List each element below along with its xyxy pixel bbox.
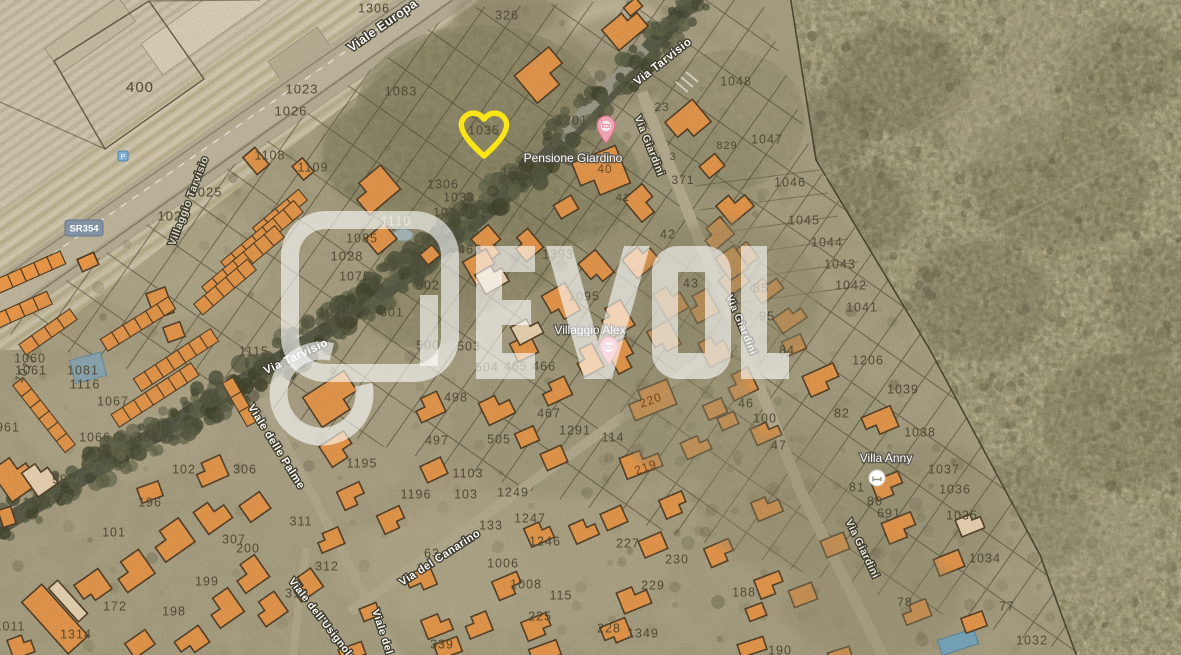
svg-text:1249: 1249 xyxy=(497,485,529,499)
svg-text:1008: 1008 xyxy=(510,577,542,591)
svg-text:1201: 1201 xyxy=(556,113,588,127)
svg-text:1036: 1036 xyxy=(939,482,971,496)
svg-text:196: 196 xyxy=(138,495,162,509)
svg-text:115: 115 xyxy=(550,588,573,602)
svg-text:41: 41 xyxy=(616,192,630,204)
svg-text:1020: 1020 xyxy=(136,430,168,444)
svg-text:229: 229 xyxy=(641,578,665,592)
svg-text:1034: 1034 xyxy=(433,205,465,219)
svg-text:1196: 1196 xyxy=(401,487,432,501)
svg-text:3: 3 xyxy=(669,151,676,163)
svg-text:1195: 1195 xyxy=(347,456,378,470)
svg-text:1046: 1046 xyxy=(774,175,806,189)
svg-text:1103: 1103 xyxy=(453,466,484,480)
svg-text:961: 961 xyxy=(0,420,20,434)
svg-text:1314: 1314 xyxy=(60,627,92,641)
svg-text:46: 46 xyxy=(738,396,754,410)
svg-text:1011: 1011 xyxy=(0,619,25,633)
svg-text:77: 77 xyxy=(999,599,1015,613)
svg-text:1121: 1121 xyxy=(23,495,54,509)
svg-text:1108: 1108 xyxy=(255,148,286,162)
svg-text:1036: 1036 xyxy=(501,165,533,179)
svg-text:43: 43 xyxy=(683,276,699,290)
svg-text:339: 339 xyxy=(430,637,454,651)
svg-text:188: 188 xyxy=(732,585,756,599)
svg-text:100: 100 xyxy=(753,411,777,425)
svg-text:1083: 1083 xyxy=(385,83,418,98)
svg-text:990: 990 xyxy=(52,472,76,486)
svg-text:1291: 1291 xyxy=(559,423,591,437)
svg-text:42: 42 xyxy=(660,227,676,241)
svg-text:1034: 1034 xyxy=(969,551,1001,565)
svg-text:200: 200 xyxy=(236,541,260,555)
svg-text:1066: 1066 xyxy=(79,430,111,444)
svg-text:1067: 1067 xyxy=(97,394,129,408)
svg-text:225: 225 xyxy=(528,609,552,623)
svg-text:190: 190 xyxy=(768,643,792,655)
svg-text:502: 502 xyxy=(416,278,440,292)
svg-text:1246: 1246 xyxy=(529,534,561,548)
svg-text:312: 312 xyxy=(315,559,339,573)
svg-text:1033: 1033 xyxy=(443,190,475,204)
svg-text:1029: 1029 xyxy=(318,305,350,319)
svg-text:497: 497 xyxy=(425,433,449,447)
svg-text:1075: 1075 xyxy=(339,269,371,283)
svg-text:P: P xyxy=(121,154,126,161)
svg-text:Pensione Giardino: Pensione Giardino xyxy=(524,151,623,165)
svg-text:1306: 1306 xyxy=(358,1,390,15)
svg-text:1085: 1085 xyxy=(346,231,378,245)
svg-text:1044: 1044 xyxy=(811,235,843,249)
svg-text:467: 467 xyxy=(537,406,561,420)
svg-text:23: 23 xyxy=(654,100,669,114)
svg-text:691: 691 xyxy=(877,506,901,520)
svg-text:SR354: SR354 xyxy=(69,224,99,235)
svg-text:102: 102 xyxy=(172,462,196,476)
svg-text:1043: 1043 xyxy=(824,257,856,271)
svg-text:326: 326 xyxy=(495,8,519,22)
svg-text:501: 501 xyxy=(380,305,404,319)
svg-text:114: 114 xyxy=(602,430,625,444)
svg-text:371: 371 xyxy=(671,173,694,187)
svg-text:400: 400 xyxy=(126,79,154,96)
svg-text:1116: 1116 xyxy=(70,376,101,391)
svg-text:1048: 1048 xyxy=(720,74,752,88)
svg-text:1042: 1042 xyxy=(835,278,867,292)
svg-text:101: 101 xyxy=(102,525,126,539)
svg-text:306: 306 xyxy=(233,462,257,476)
svg-text:82: 82 xyxy=(834,406,850,420)
svg-text:1032: 1032 xyxy=(1016,633,1048,647)
svg-text:230: 230 xyxy=(665,552,689,566)
svg-text:1026: 1026 xyxy=(275,103,308,118)
svg-text:1081: 1081 xyxy=(67,363,99,377)
svg-text:1037: 1037 xyxy=(928,462,960,476)
svg-text:1035: 1035 xyxy=(946,508,978,522)
svg-text:498: 498 xyxy=(444,390,468,404)
svg-text:227: 227 xyxy=(616,536,640,550)
svg-text:1039: 1039 xyxy=(887,382,919,396)
svg-text:1349: 1349 xyxy=(627,626,659,640)
svg-text:1061: 1061 xyxy=(15,363,47,377)
svg-text:1306: 1306 xyxy=(427,177,459,191)
svg-text:1109: 1109 xyxy=(298,160,329,174)
svg-text:1006: 1006 xyxy=(487,556,519,570)
svg-text:1035: 1035 xyxy=(468,123,500,137)
svg-text:103: 103 xyxy=(454,487,478,501)
svg-text:1023: 1023 xyxy=(286,81,319,96)
svg-text:1038: 1038 xyxy=(904,425,936,439)
svg-text:1047: 1047 xyxy=(751,132,783,146)
svg-text:1247: 1247 xyxy=(514,511,546,525)
svg-text:199: 199 xyxy=(195,574,219,588)
svg-text:133: 133 xyxy=(479,518,503,532)
svg-text:228: 228 xyxy=(597,621,621,635)
svg-text:1041: 1041 xyxy=(846,300,878,314)
svg-text:1028: 1028 xyxy=(331,248,364,263)
svg-text:Villa Anny: Villa Anny xyxy=(860,451,912,465)
svg-text:311: 311 xyxy=(290,514,313,528)
svg-text:1045: 1045 xyxy=(788,213,820,227)
svg-text:505: 505 xyxy=(487,432,511,446)
svg-text:47: 47 xyxy=(771,438,787,452)
svg-text:172: 172 xyxy=(103,599,127,613)
svg-text:81: 81 xyxy=(849,480,865,494)
svg-text:829: 829 xyxy=(716,140,737,152)
svg-text:78: 78 xyxy=(897,595,913,609)
svg-text:1206: 1206 xyxy=(852,353,884,367)
svg-text:198: 198 xyxy=(162,604,186,618)
svg-text:1115: 1115 xyxy=(239,344,269,358)
